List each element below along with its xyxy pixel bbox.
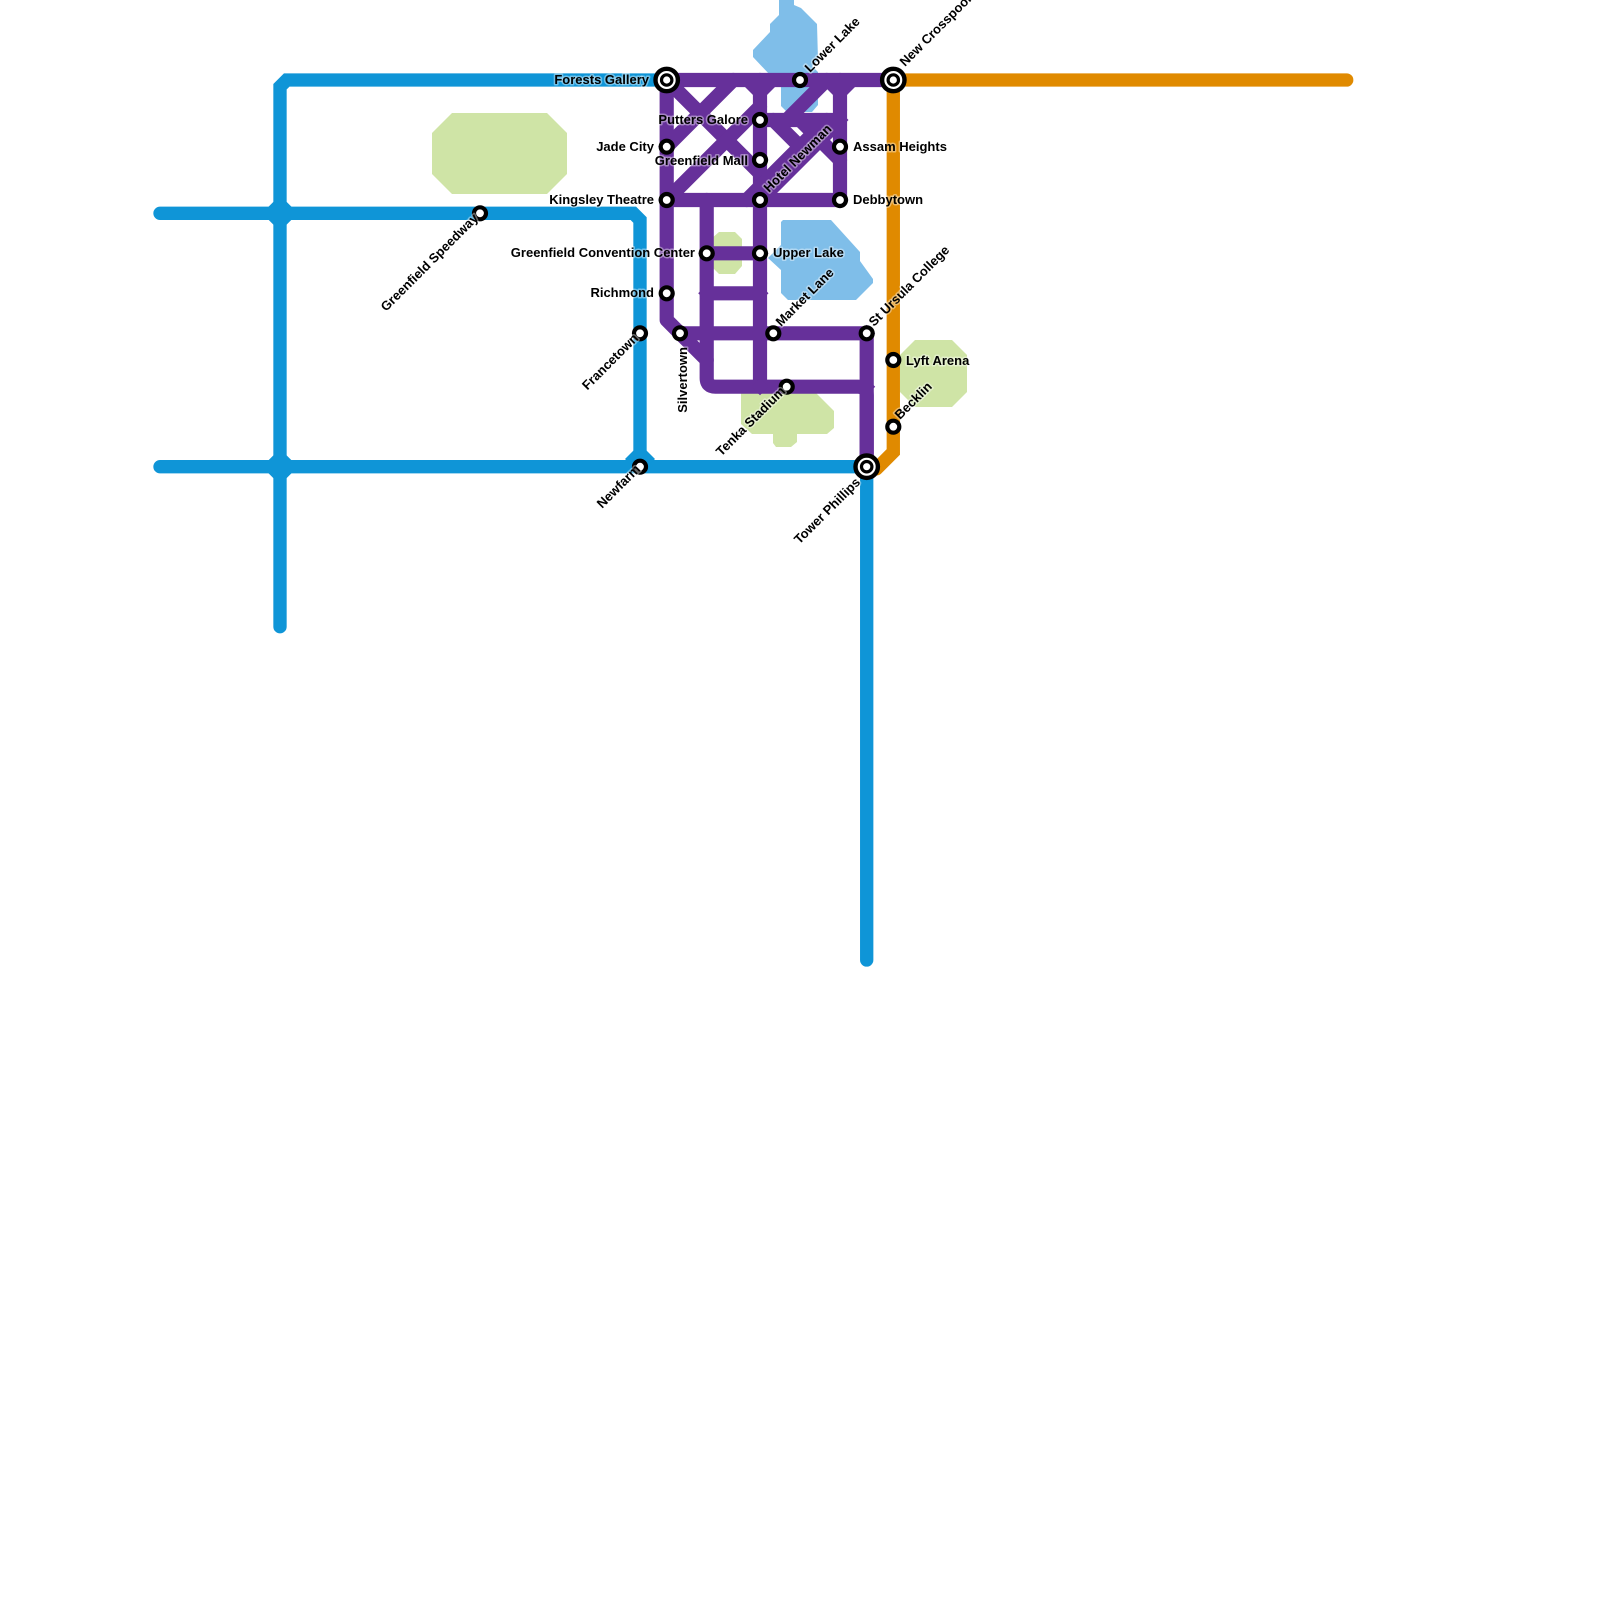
svg-text:Silvertown: Silvertown (675, 347, 690, 413)
svg-text:Lyft Arena: Lyft Arena (906, 353, 970, 368)
svg-text:Jade City: Jade City (596, 139, 655, 154)
svg-text:Greenfield Convention Center: Greenfield Convention Center (511, 245, 695, 260)
svg-text:Forests Gallery: Forests Gallery (554, 72, 649, 87)
svg-text:Debbytown: Debbytown (853, 192, 923, 207)
svg-text:Upper Lake: Upper Lake (773, 245, 844, 260)
svg-text:Putters Galore: Putters Galore (658, 112, 748, 127)
svg-text:Assam Heights: Assam Heights (853, 139, 947, 154)
svg-text:Greenfield Mall: Greenfield Mall (655, 153, 748, 168)
svg-text:Kingsley Theatre: Kingsley Theatre (549, 192, 654, 207)
svg-text:Richmond: Richmond (590, 285, 654, 300)
